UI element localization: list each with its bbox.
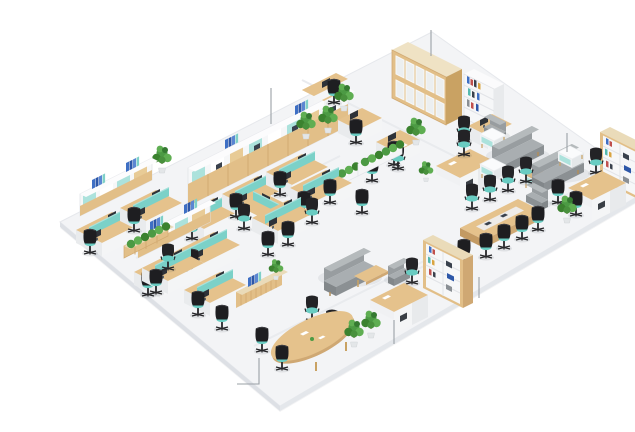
office-chair: [348, 119, 364, 147]
conference-chair: [482, 175, 498, 204]
conference-chair: [496, 224, 512, 252]
office-chair: [190, 291, 206, 319]
office-chair: [214, 305, 230, 333]
office-chair: [456, 130, 472, 159]
office-chair: [260, 231, 276, 259]
office-floorplan-render: Isometric 3D rendering of an open-plan o…: [40, 16, 635, 416]
meeting-chair: [274, 345, 290, 373]
office-chair: [148, 269, 164, 297]
office-chair: [160, 244, 176, 273]
conference-chair: [514, 215, 530, 243]
office-chair: [236, 204, 252, 233]
office-chair: [322, 179, 338, 207]
office-chair: [272, 171, 288, 199]
office-chair: [126, 207, 142, 235]
isometric-scene: [40, 16, 635, 416]
conference-chair: [518, 157, 534, 186]
conference-chair: [500, 166, 516, 195]
office-chair: [354, 189, 370, 217]
office-chair: [280, 221, 296, 249]
office-chair: [404, 258, 420, 287]
conference-chair: [478, 233, 494, 261]
office-chair: [304, 198, 320, 227]
meeting-chair: [254, 327, 270, 355]
office-chair: [82, 229, 98, 257]
conference-chair: [464, 184, 480, 213]
conference-chair: [530, 206, 546, 234]
